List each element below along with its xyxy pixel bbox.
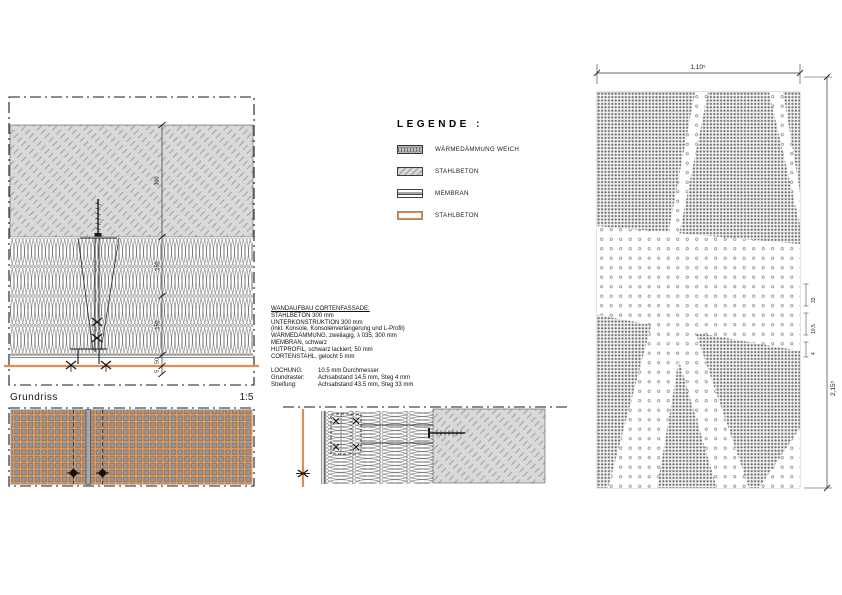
dim-label-corten: 5 bbox=[155, 370, 161, 373]
spec-row-label: LOCHUNG: bbox=[271, 368, 318, 375]
spec-row-value: Achsabstand 14.5 mm, Steg 4 mm bbox=[318, 375, 410, 382]
legend-swatch-membrane-icon bbox=[397, 189, 423, 198]
wall-spec: WANDAUFBAU CORTENFASSADE: STAHLBETON 300… bbox=[271, 306, 501, 389]
legend: LEGENDE : WÄRMEDÄMMUNG WEICH STAHLBETON … bbox=[397, 119, 577, 226]
perforation-detail-dims: 33 10,5 4 bbox=[804, 284, 818, 357]
spec-row-label: Streifung: bbox=[271, 382, 318, 389]
perforation-spec-table: LOCHUNG: 10.5 mm Durchmesser Grundraster… bbox=[271, 368, 501, 388]
spec-line: MEMBRAN, schwarz bbox=[271, 340, 501, 347]
concrete-block bbox=[433, 409, 545, 483]
cad-drawing: 300 150 150 50 5 Grundriss 1:5 bbox=[0, 0, 842, 595]
spec-row-value: 10.5 mm Durchmesser bbox=[318, 368, 379, 375]
vertical-section-drawing bbox=[283, 407, 570, 487]
height-dim-label: 2,15⁵ bbox=[830, 380, 837, 396]
detail-dim-hole: 10,5 bbox=[811, 324, 817, 334]
dim-label-hat-profile: 50 bbox=[155, 358, 161, 364]
corten-panel-front-view bbox=[9, 408, 254, 486]
legend-swatch-insulation-icon bbox=[397, 145, 423, 154]
detail-dim-steg: 4 bbox=[811, 352, 817, 355]
plan-section-drawing: 300 150 150 50 5 Grundriss 1:5 bbox=[4, 97, 259, 403]
spec-row-value: Achsabstand 43.5 mm, Steg 33 mm bbox=[318, 382, 413, 389]
width-dim-label: 1,10⁵ bbox=[690, 64, 706, 71]
drawing-sheet: 300 150 150 50 5 Grundriss 1:5 bbox=[0, 0, 842, 595]
dim-label-insulation-2: 150 bbox=[155, 320, 161, 329]
spec-row: Streifung: Achsabstand 43.5 mm, Steg 33 … bbox=[271, 382, 501, 389]
concrete-layer bbox=[10, 125, 253, 237]
spec-line: HUTPROFIL, schwarz lackiert, 50 mm bbox=[271, 347, 501, 354]
legend-item-label: STAHLBETON bbox=[435, 212, 479, 219]
spec-line: UNTERKONSTRUKTION 300 mm bbox=[271, 320, 501, 327]
legend-swatch-corten-icon bbox=[397, 211, 423, 220]
plan-scale: 1:5 bbox=[240, 392, 254, 403]
legend-item: STAHLBETON bbox=[397, 204, 577, 226]
membrane-line bbox=[10, 355, 253, 357]
legend-swatch-concrete-icon bbox=[397, 167, 423, 176]
spec-line: WÄRMEDÄMMUNG, zweilagig, λ 035, 300 mm bbox=[271, 333, 501, 340]
legend-item: MEMBRAN bbox=[397, 182, 577, 204]
legend-title: LEGENDE : bbox=[397, 119, 577, 130]
spec-row-label: Grundraster: bbox=[271, 375, 318, 382]
dim-label-concrete: 300 bbox=[155, 176, 161, 185]
legend-item-label: MEMBRAN bbox=[435, 190, 469, 197]
panel-elevation: 1,10⁵ 2,15⁵ 33 10,5 bbox=[594, 64, 837, 491]
detail-dim-streifen: 33 bbox=[811, 297, 817, 303]
panel-joint bbox=[86, 410, 91, 485]
legend-item-label: STAHLBETON bbox=[435, 168, 479, 175]
legend-item-label: WÄRMEDÄMMUNG WEICH bbox=[435, 146, 519, 153]
spec-row: LOCHUNG: 10.5 mm Durchmesser bbox=[271, 368, 501, 375]
spec-line: CORTENSTAHL, gelocht 5 mm bbox=[271, 354, 501, 361]
spec-line: STAHLBETON 300 mm bbox=[271, 313, 501, 320]
membrane-line-vertical bbox=[322, 411, 324, 484]
elevation-width-dimension: 1,10⁵ bbox=[594, 64, 803, 84]
elevation-height-dimension: 2,15⁵ bbox=[804, 74, 837, 491]
plan-caption: Grundriss bbox=[10, 392, 58, 403]
legend-item: STAHLBETON bbox=[397, 160, 577, 182]
corten-weave-area bbox=[11, 410, 253, 485]
spec-row: Grundraster: Achsabstand 14.5 mm, Steg 4… bbox=[271, 375, 501, 382]
dim-label-insulation-1: 150 bbox=[155, 261, 161, 270]
legend-item: WÄRMEDÄMMUNG WEICH bbox=[397, 138, 577, 160]
wall-spec-title: WANDAUFBAU CORTENFASSADE: bbox=[271, 306, 501, 313]
